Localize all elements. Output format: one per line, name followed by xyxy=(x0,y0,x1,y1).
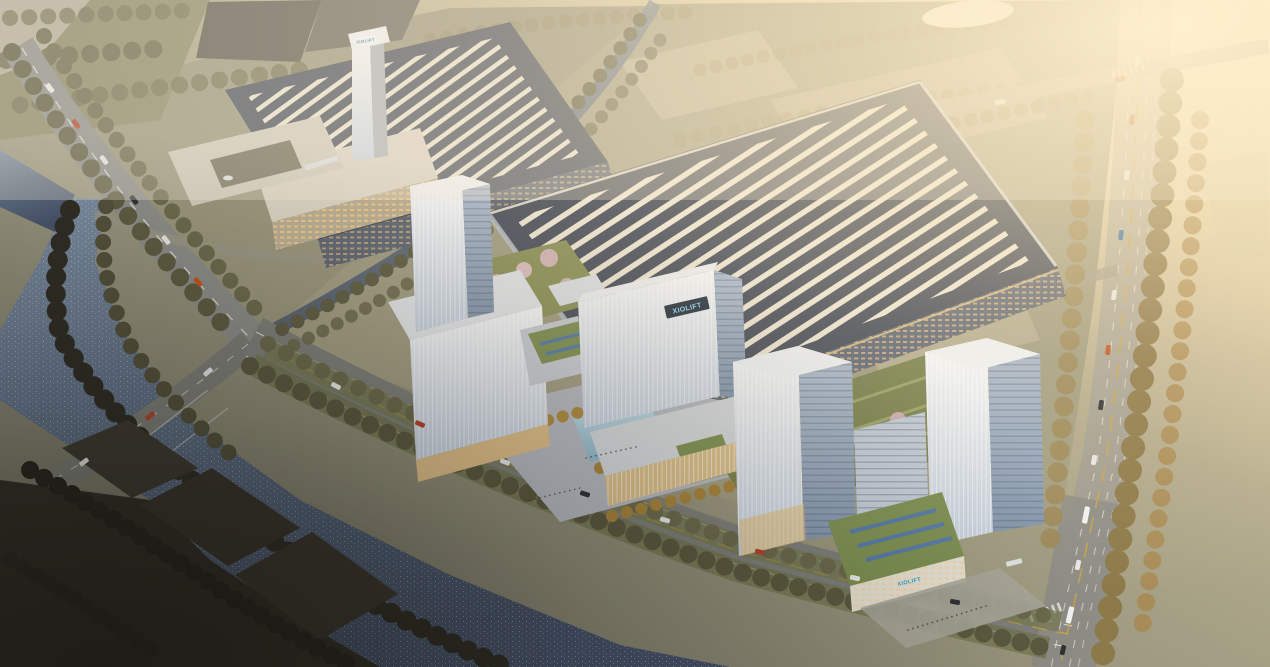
atmosphere xyxy=(0,0,1270,667)
render-canvas: XIOLIFT XIOLIFT xyxy=(0,0,1270,667)
corner-vignette xyxy=(0,0,1270,667)
architectural-aerial-render: XIOLIFT XIOLIFT xyxy=(0,0,1270,667)
